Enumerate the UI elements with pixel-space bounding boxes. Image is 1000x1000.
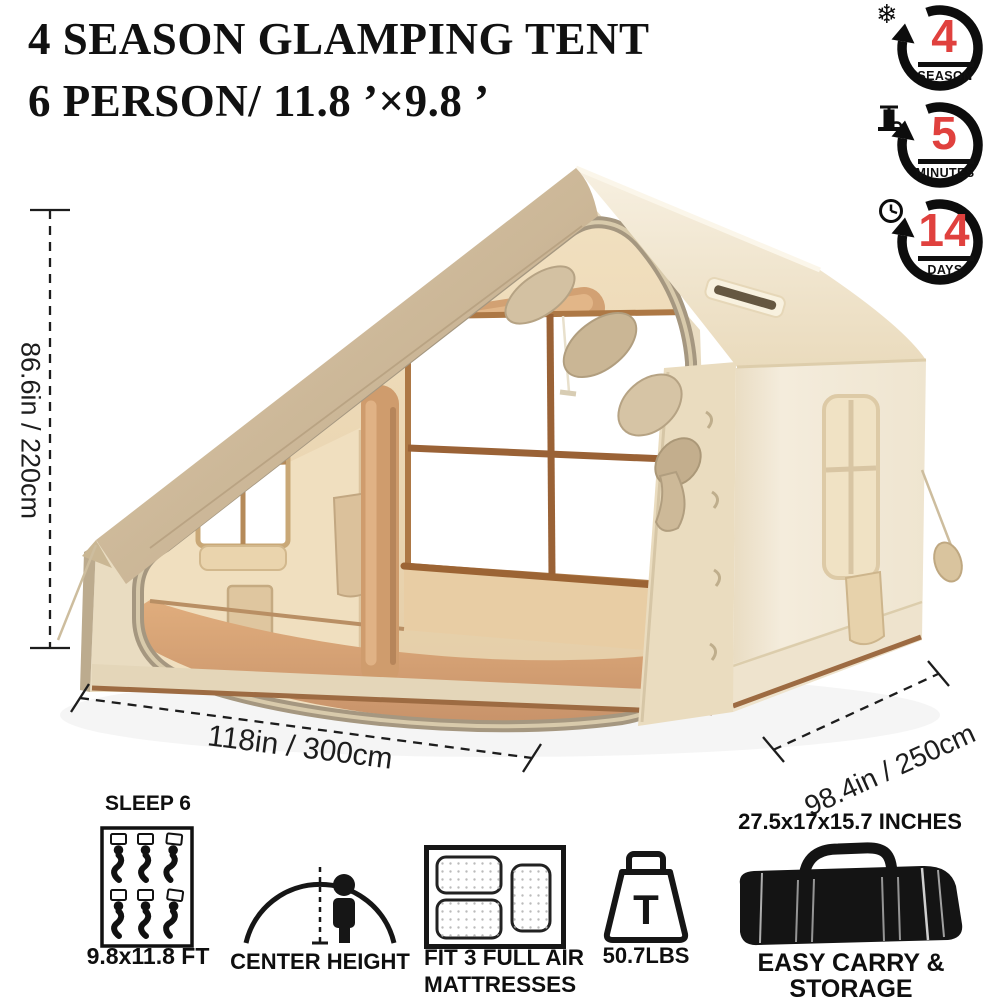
fabric-tassel: [929, 539, 966, 585]
badge-14-days: 14 DAYS: [876, 196, 994, 290]
bag-size-title: 27.5x17x15.7 INCHES: [720, 810, 980, 833]
air-mattresses-icon: [424, 845, 566, 949]
snowflake-icon: ❄: [876, 0, 898, 30]
easy-carry-label: EASY CARRY & STORAGE: [706, 950, 996, 1000]
duffel-bag-icon: [726, 840, 966, 952]
weight-label: 50.7LBS: [576, 944, 716, 967]
air-pump-icon: [878, 107, 901, 129]
mattress-fit-label-line1: FIT 3 FULL AIR: [424, 946, 594, 970]
badge-column: ❄ 4 SEASON 5 MINUTES: [876, 2, 996, 293]
mattress-fit-label-line2: MATTRESSES: [424, 973, 594, 997]
badge-value: 14: [913, 207, 975, 253]
badge-4-season: ❄ 4 SEASON: [876, 2, 994, 96]
dome-tent-with-person-icon: [240, 845, 400, 950]
center-height-label: CENTER HEIGHT: [230, 950, 410, 973]
badge-underline: [918, 256, 974, 261]
badge-value: 4: [913, 13, 975, 59]
badge-5-minutes: 5 MINUTES: [876, 99, 994, 193]
height-dimension-label: 86.6in / 220cm: [15, 281, 46, 581]
footprint-size-label: 9.8x11.8 FT: [78, 944, 218, 968]
weight-icon: T: [596, 848, 696, 946]
badge-underline: [918, 159, 974, 164]
sleep-capacity-title: SLEEP 6: [92, 793, 204, 815]
sleep-6-people-icon: [100, 826, 194, 948]
badge-label: SEASON: [900, 69, 990, 83]
badge-underline: [918, 62, 974, 67]
tent-product-infographic: 4 SEASON GLAMPING TENT 6 PERSON/ 11.8 ’×…: [0, 0, 1000, 1000]
badge-value: 5: [913, 110, 975, 156]
weight-letter: T: [633, 886, 659, 933]
badge-label: DAYS: [900, 263, 990, 277]
guy-rope-right: [922, 470, 952, 548]
clock-icon: [881, 201, 902, 222]
badge-label: MINUTES: [900, 166, 990, 180]
